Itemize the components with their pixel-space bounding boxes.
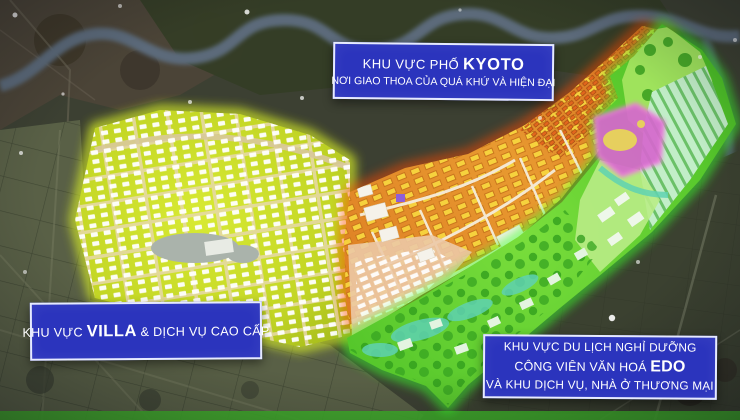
villa-label-suffix: & DỊCH VỤ CAO CẤP [137,324,270,339]
edo-label-name: EDO [650,359,685,376]
masterplan-aerial-view: KHU VỰC PHỐ KYOTO NƠI GIAO THOA CỦA QUÁ … [0,0,740,420]
villa-label-line1: KHU VỰC VILLA & DỊCH VỤ CAO CẤP [22,321,269,342]
edo-label-prefix: CÔNG VIÊN VĂN HOÁ [514,360,650,375]
kyoto-label-name: KYOTO [463,55,525,74]
villa-label: KHU VỰC VILLA & DỊCH VỤ CAO CẤP [30,301,262,361]
villa-label-name: VILLA [87,322,137,340]
kyoto-label-line1: KHU VỰC PHỐ KYOTO [363,54,525,75]
edo-label-line3: VÀ KHU DỊCH VỤ, NHÀ Ở THƯƠNG MẠI [486,377,714,395]
kyoto-label: KHU VỰC PHỐ KYOTO NƠI GIAO THOA CỦA QUÁ … [333,42,555,101]
kyoto-label-line2: NƠI GIAO THOA CỦA QUÁ KHỨ VÀ HIỆN ĐẠI [331,75,555,89]
edo-label: KHU VỰC DU LỊCH NGHỈ DƯỠNG CÔNG VIÊN VĂN… [483,334,717,400]
edo-label-line2: CÔNG VIÊN VĂN HOÁ EDO [514,356,685,379]
edo-label-line1: KHU VỰC DU LỊCH NGHỈ DƯỠNG [504,340,697,357]
villa-label-prefix: KHU VỰC [22,325,86,339]
kyoto-label-prefix: KHU VỰC PHỐ [363,56,464,72]
